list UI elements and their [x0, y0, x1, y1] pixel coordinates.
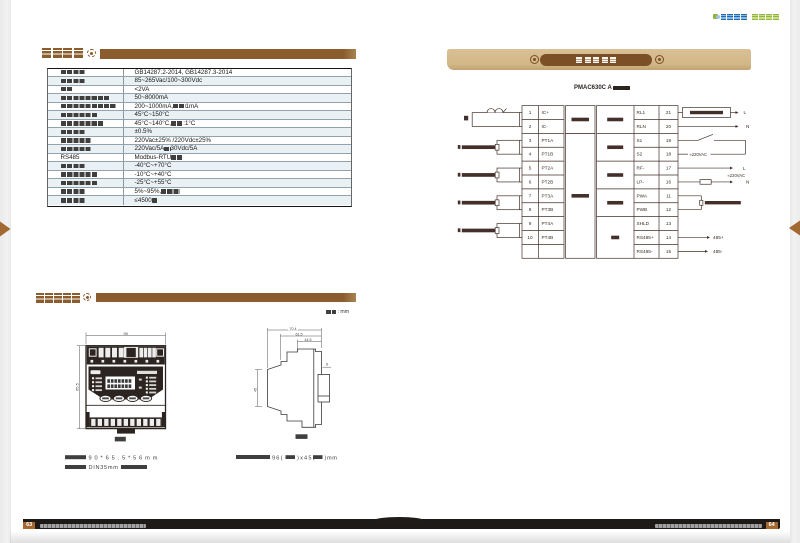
svg-text:10: 10: [527, 235, 533, 240]
svg-text:18: 18: [666, 152, 672, 157]
svg-text:61.5: 61.5: [296, 333, 303, 337]
svg-text:PT4A: PT4A: [542, 221, 555, 226]
svg-text:16: 16: [666, 179, 672, 184]
svg-text:96(: 96(: [272, 456, 284, 462]
svg-text:20: 20: [666, 124, 672, 129]
svg-text:≈220VAC: ≈220VAC: [690, 152, 708, 157]
svg-text:IC-: IC-: [542, 124, 549, 129]
svg-text:≈220VAC: ≈220VAC: [728, 173, 746, 178]
svg-text:L: L: [743, 166, 746, 171]
svg-text:S1: S1: [637, 138, 643, 143]
svg-text:PT3B: PT3B: [542, 207, 554, 212]
svg-text:PWA: PWA: [637, 193, 648, 198]
svg-text:RLN: RLN: [637, 124, 646, 129]
svg-text:PT4B: PT4B: [542, 235, 554, 240]
svg-text:SHLD: SHLD: [637, 221, 650, 226]
svg-text:9: 9: [529, 221, 532, 226]
svg-text:RL1: RL1: [637, 110, 646, 115]
svg-text:PT2A: PT2A: [542, 166, 555, 171]
svg-text:)mm: )mm: [325, 456, 338, 462]
svg-text:44.5: 44.5: [305, 338, 312, 342]
svg-text:65.5: 65.5: [74, 382, 79, 391]
svg-text:14: 14: [666, 235, 672, 240]
svg-text:21: 21: [666, 110, 672, 115]
svg-text:1: 1: [529, 110, 532, 115]
svg-text:90: 90: [123, 331, 128, 336]
svg-text:PT2B: PT2B: [542, 179, 554, 184]
svg-text:4: 4: [529, 152, 532, 157]
svg-text:70.4: 70.4: [290, 327, 297, 331]
svg-text:8: 8: [529, 207, 532, 212]
svg-text:13: 13: [666, 221, 672, 226]
svg-text:DIN35mm: DIN35mm: [89, 465, 119, 471]
svg-text:15: 15: [666, 249, 672, 254]
svg-text:LP-: LP-: [637, 179, 645, 184]
svg-text:S2: S2: [637, 152, 643, 157]
svg-text:8: 8: [326, 363, 328, 367]
svg-text:PT3A: PT3A: [542, 193, 555, 198]
svg-text:12: 12: [666, 207, 672, 212]
svg-text:RF-: RF-: [637, 166, 645, 171]
svg-text:45: 45: [254, 388, 258, 392]
svg-text:7: 7: [529, 193, 532, 198]
svg-text:11: 11: [666, 193, 671, 198]
svg-text:N: N: [746, 180, 749, 185]
svg-text:)x45(: )x45(: [297, 456, 316, 462]
svg-text:PT1A: PT1A: [542, 138, 555, 143]
svg-text:485+: 485+: [713, 235, 724, 240]
svg-text:L: L: [744, 110, 747, 115]
svg-text:PWB: PWB: [637, 207, 648, 212]
svg-text:RS485-: RS485-: [637, 249, 653, 254]
svg-text:6: 6: [529, 179, 532, 184]
svg-text:3: 3: [529, 138, 532, 143]
svg-text:19: 19: [666, 138, 672, 143]
svg-text:485-: 485-: [713, 249, 723, 254]
svg-text:IC+: IC+: [542, 110, 550, 115]
svg-text:90*65.5*56mm: 90*65.5*56mm: [89, 455, 161, 461]
svg-text:RS485+: RS485+: [637, 235, 654, 240]
svg-text:2: 2: [529, 124, 532, 129]
svg-text:PT1B: PT1B: [542, 152, 554, 157]
svg-text:N: N: [746, 124, 749, 129]
svg-text:17: 17: [666, 166, 672, 171]
svg-text:5: 5: [529, 166, 532, 171]
